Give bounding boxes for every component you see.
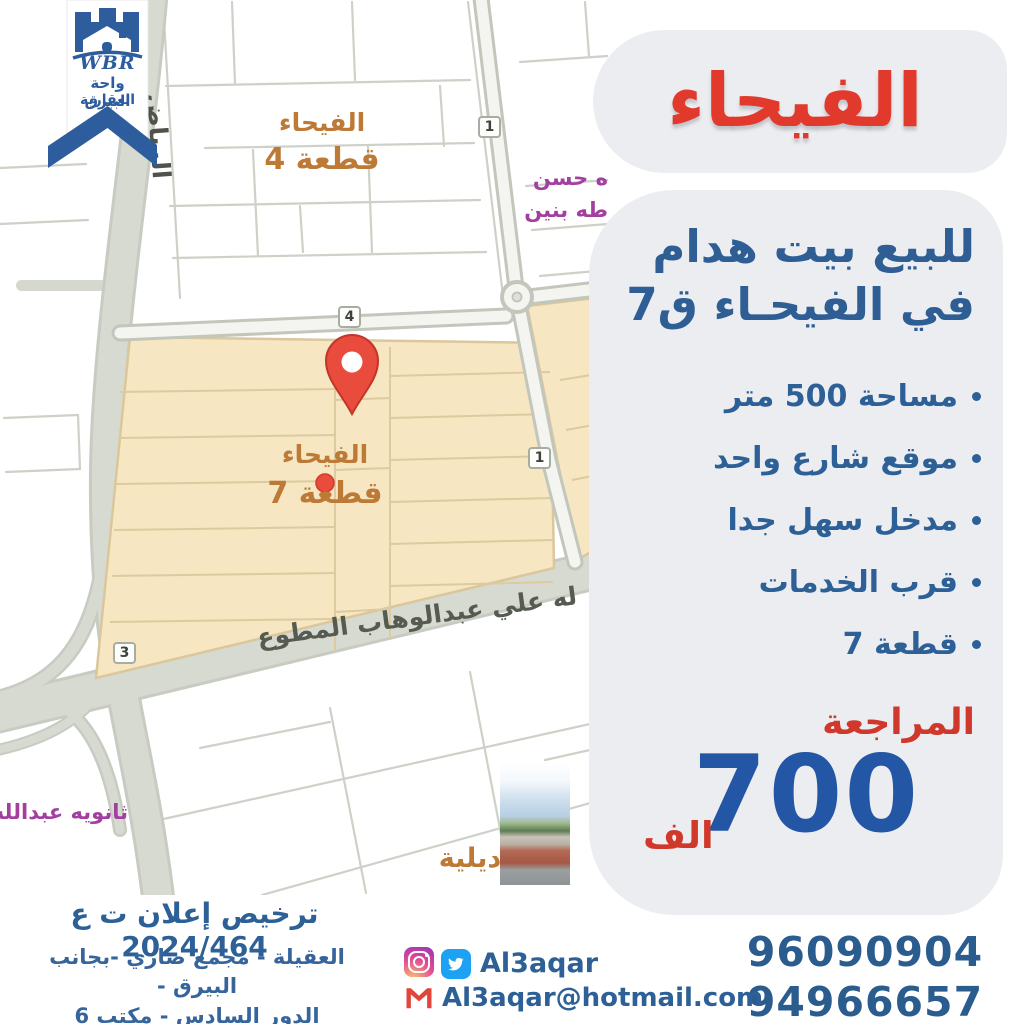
brand-initials: WBR	[67, 52, 148, 74]
feature-text: قرب الخدمات	[759, 565, 958, 600]
social-email[interactable]: Al3aqar@hotmail.com	[442, 983, 763, 1013]
real-estate-poster: الفيحاء قطعة 4 الفيحاء قطعة 7 ه حسن طه ب…	[0, 0, 1024, 1024]
map: الفيحاء قطعة 4 الفيحاء قطعة 7 ه حسن طه ب…	[0, 0, 608, 895]
phone-number-2: 94966657	[720, 978, 1010, 1024]
school-bottom-label: ثانويه عبدالله	[8, 800, 128, 824]
list-item: مساحة 500 متر	[604, 365, 981, 427]
instagram-icon	[404, 947, 434, 977]
details-pill: للبيع بيت هدام في الفيحـاء ق7 مساحة 500 …	[589, 190, 1003, 915]
road-badge-1-right: 1	[528, 447, 551, 469]
school-top-label-line1: ه حسن	[498, 166, 608, 190]
price-unit: الف	[643, 814, 714, 857]
offer-text: للبيع بيت هدام في الفيحـاء ق7	[604, 218, 975, 333]
twitter-icon	[441, 949, 471, 979]
road-badge-4: 4	[338, 306, 361, 328]
address-line2: الدور السادس - مكتب 6	[22, 1002, 372, 1024]
block4-label-line2: قطعة 4	[252, 142, 392, 177]
street-photo-inset	[500, 762, 570, 885]
phone-number-1: 96090904	[720, 928, 1010, 976]
bullet-dot-icon	[972, 640, 981, 649]
price-amount: 700	[674, 742, 939, 848]
instagram-dot	[425, 953, 429, 957]
bullet-dot-icon	[972, 578, 981, 587]
instagram-lens	[413, 956, 425, 968]
list-item: قطعة 7	[604, 613, 981, 675]
gmail-icon	[404, 984, 434, 1010]
feature-list: مساحة 500 متر موقع شارع واحد مدخل سهل جد…	[604, 365, 981, 675]
list-item: قرب الخدمات	[604, 551, 981, 613]
block4-label-line1: الفيحاء	[252, 108, 392, 137]
feature-text: موقع شارع واحد	[713, 441, 958, 476]
block7-label-line1: الفيحاء	[250, 440, 400, 469]
headline: الفيحاء	[593, 30, 997, 173]
bullet-dot-icon	[972, 516, 981, 525]
feature-text: مدخل سهل جدا	[727, 503, 958, 538]
road-badge-1-top: 1	[478, 116, 501, 138]
block7-label-line2: قطعة 7	[250, 476, 400, 511]
brand-name-line2: العقارية	[67, 92, 148, 108]
list-item: مدخل سهل جدا	[604, 489, 981, 551]
school-top-label-line2: طه بنين	[498, 198, 608, 222]
office-address: العقيلة - مجمع ضاري -بجانب البيرق - الدو…	[22, 943, 372, 1024]
road-badge-3: 3	[113, 642, 136, 664]
brand-logo: WBR واحة البيرق العقارية	[45, 0, 163, 190]
bullet-dot-icon	[972, 454, 981, 463]
address-line1: العقيلة - مجمع ضاري -بجانب البيرق -	[22, 943, 372, 1002]
feature-text: قطعة 7	[843, 627, 958, 662]
list-item: موقع شارع واحد	[604, 427, 981, 489]
social-handle[interactable]: Al3aqar	[480, 948, 598, 979]
offer-line1: للبيع بيت هدام	[604, 218, 975, 276]
bullet-dot-icon	[972, 392, 981, 401]
district-label: ديلية	[432, 843, 508, 874]
offer-line2: في الفيحـاء ق7	[604, 276, 975, 334]
feature-text: مساحة 500 متر	[725, 379, 958, 414]
headline-pill: الفيحاء	[593, 30, 1007, 173]
